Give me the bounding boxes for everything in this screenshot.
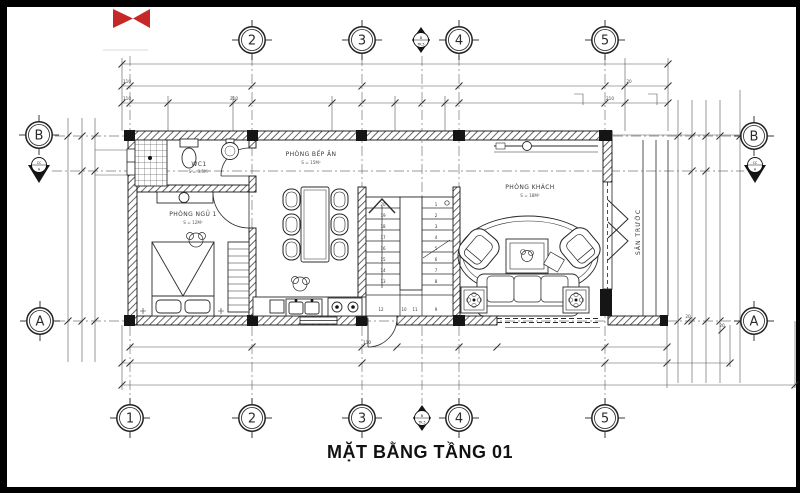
tread-number: 13 bbox=[380, 279, 386, 284]
section-marker-label: TK.5 bbox=[416, 43, 424, 47]
section-marker-label: TK.5 bbox=[417, 421, 425, 425]
dining-chair bbox=[331, 214, 348, 235]
grid-bubble-a-right: A bbox=[750, 315, 759, 330]
grid-bubble-1-bottom: 1 bbox=[126, 412, 134, 427]
tread-number: 9 bbox=[435, 307, 438, 312]
room-area-wc: S = 3.5M² bbox=[189, 169, 210, 174]
tread-number: 10 bbox=[401, 307, 407, 312]
tread-number: 11 bbox=[412, 307, 418, 312]
room-label-kitchen: PHÒNG BẾP ĂN bbox=[286, 150, 337, 158]
side-table bbox=[563, 287, 589, 313]
room-area-bedroom: S = 12M² bbox=[183, 220, 203, 225]
section-marker-label: B bbox=[420, 36, 422, 40]
tread-number: 4 bbox=[435, 235, 438, 240]
section-marker-label: CC bbox=[37, 161, 42, 165]
tread-number: 8 bbox=[435, 279, 438, 284]
room-label-wc: WC1 bbox=[191, 161, 206, 168]
dining-chair bbox=[283, 239, 300, 260]
tread-number: 2 bbox=[435, 213, 438, 218]
wall-front bbox=[603, 140, 612, 182]
tread-number: 5 bbox=[435, 246, 438, 251]
room-label-bedroom: PHÒNG NGỦ 1 bbox=[169, 210, 217, 218]
wall-interior bbox=[249, 176, 256, 192]
tread-number: 1 bbox=[435, 202, 438, 207]
dim-label: 20 bbox=[719, 323, 725, 328]
dresser bbox=[157, 192, 213, 203]
grid-bubble-2-bottom: 2 bbox=[248, 412, 256, 427]
side-table bbox=[461, 287, 487, 313]
floorplan-page: 110 110 210 210 20 110 20 20 bbox=[0, 0, 800, 493]
dim-label: 110 bbox=[123, 96, 131, 101]
tread-number: 12 bbox=[378, 307, 384, 312]
tread-number: 15 bbox=[380, 257, 386, 262]
tread-number: 17 bbox=[380, 235, 386, 240]
console-knob bbox=[523, 142, 532, 151]
dining-chair bbox=[283, 214, 300, 235]
stairs: 20 19 18 17 16 15 14 13 1 2 3 4 5 6 7 8 … bbox=[366, 197, 453, 316]
stove bbox=[328, 298, 362, 316]
grid-bubble-b-right: B bbox=[750, 130, 759, 145]
dim-label: 210 bbox=[230, 96, 238, 101]
dim-label: 20 bbox=[626, 79, 632, 84]
grid-bubble-a-left: A bbox=[36, 315, 45, 330]
wall-bottom-mid bbox=[397, 316, 497, 325]
section-marker-label: CC bbox=[753, 161, 758, 165]
room-area-kitchen: S = 15M² bbox=[301, 160, 321, 165]
grid-bubble-b-left: B bbox=[35, 129, 44, 144]
dining-chair bbox=[331, 239, 348, 260]
grid-bubble-5-top: 5 bbox=[601, 34, 609, 49]
dining-chair bbox=[331, 189, 348, 210]
toilet-tank bbox=[180, 139, 198, 147]
tread-number: 18 bbox=[380, 224, 386, 229]
tread-number: 3 bbox=[435, 224, 438, 229]
pillow bbox=[185, 300, 210, 313]
grid-bubble-5-bottom: 5 bbox=[601, 412, 609, 427]
dining-table bbox=[301, 187, 329, 262]
room-area-living: S = 18M² bbox=[520, 193, 540, 198]
shower-tiles bbox=[135, 140, 167, 186]
dim-label: 110 bbox=[363, 340, 371, 345]
floorplan-drawing: 110 110 210 210 20 110 20 20 bbox=[0, 0, 800, 493]
dining-chair bbox=[283, 189, 300, 210]
coffee-table bbox=[506, 239, 548, 273]
wall-interior bbox=[249, 140, 256, 148]
grid-bubble-3-bottom: 3 bbox=[358, 412, 366, 427]
dim-label: 20 bbox=[685, 314, 691, 319]
shower-drain-icon bbox=[148, 156, 152, 160]
tread-number: 14 bbox=[380, 268, 386, 273]
dim-label: 210 bbox=[606, 96, 614, 101]
wall-bottom-right bbox=[608, 316, 665, 325]
tread-number: 6 bbox=[435, 257, 438, 262]
grid-bubble-2-top: 2 bbox=[248, 34, 256, 49]
room-label-living: PHÒNG KHÁCH bbox=[505, 184, 554, 191]
tread-number: 20 bbox=[380, 202, 386, 207]
grid-bubble-4-bottom: 4 bbox=[455, 412, 463, 427]
wash-basin bbox=[222, 143, 239, 160]
grid-bubble-4-top: 4 bbox=[455, 34, 463, 49]
section-marker-label: B bbox=[421, 414, 423, 418]
room-label-porch: SÂN TRƯỚC bbox=[635, 209, 642, 255]
stair-void bbox=[400, 197, 422, 290]
tread-number: 19 bbox=[380, 213, 386, 218]
dim-label: 110 bbox=[123, 79, 131, 84]
grid-bubble-3-top: 3 bbox=[358, 34, 366, 49]
pillow bbox=[156, 300, 181, 313]
tread-number: 16 bbox=[380, 246, 386, 251]
tread-number: 7 bbox=[435, 268, 438, 273]
drawing-title: MẶT BẰNG TẦNG 01 bbox=[327, 441, 513, 462]
wall-top bbox=[128, 131, 612, 140]
